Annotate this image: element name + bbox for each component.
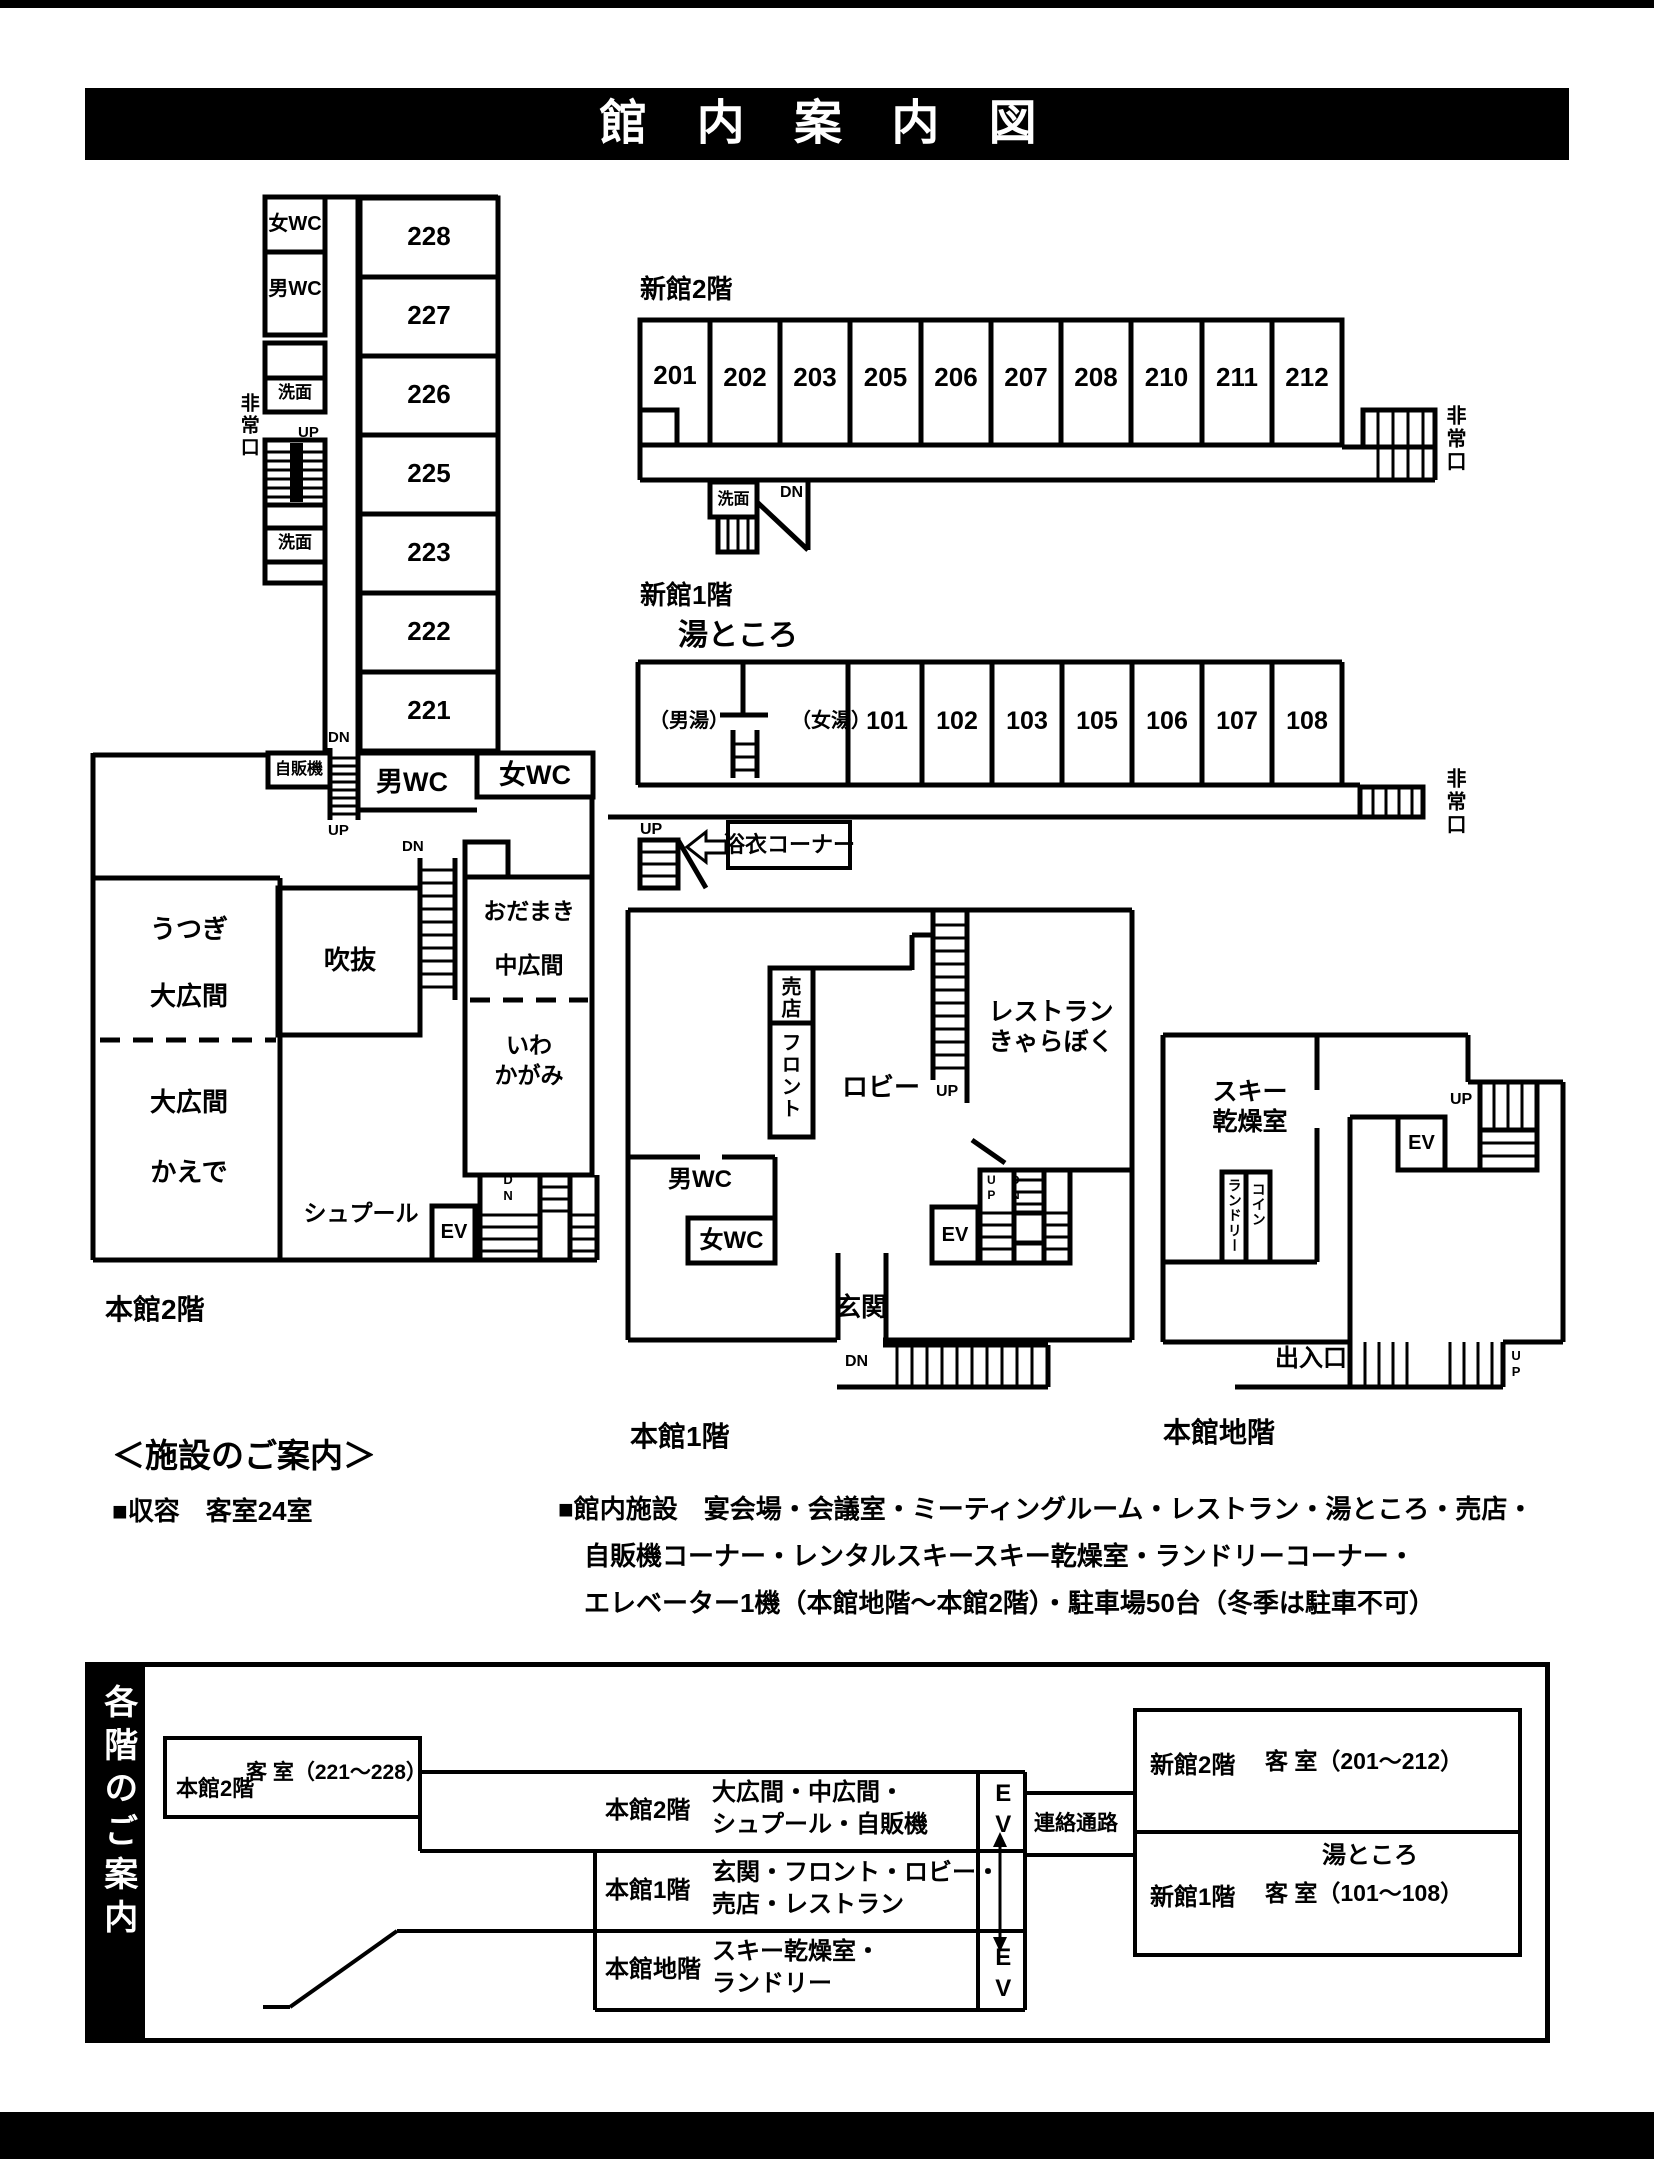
room-label-206: 206 xyxy=(921,362,991,394)
stair-dn-label: DN xyxy=(328,729,350,747)
atrium-label: 吹抜 xyxy=(300,945,400,977)
kaede-room-label-2: かえで xyxy=(108,1158,270,1188)
womens-wc-label: 女WC xyxy=(267,210,323,238)
plan-shinkan2f-walls xyxy=(640,320,1435,552)
guide-shinkan1f-floor: 新館1階 xyxy=(1150,1884,1235,1913)
stair-dn-label: DN xyxy=(500,1172,516,1204)
ski-drying-label-1: スキー xyxy=(1185,1078,1315,1106)
entrance-stairs-treads xyxy=(897,1345,1032,1387)
guide-honkan2f-rooms-floor: 本館2階 xyxy=(176,1776,254,1802)
mens-wc2-label: 男WC xyxy=(363,765,461,799)
room-label-227: 227 xyxy=(362,301,496,331)
odamaki-hall-label-2: 中広間 xyxy=(470,952,588,980)
stairs-treads xyxy=(332,758,356,814)
odamaki-hall-label-1: おだまき xyxy=(470,898,588,926)
vending-label: 自販機 xyxy=(270,758,328,782)
mens-bath-label: （男湯） xyxy=(636,708,742,734)
room-label-203: 203 xyxy=(780,362,850,394)
washroom-label: 洗面 xyxy=(712,488,755,512)
iwakagami-room-label-1: いわ xyxy=(470,1032,588,1059)
guide-ev-bottom-label: EV xyxy=(988,1944,1017,2006)
room-label-211: 211 xyxy=(1202,362,1272,394)
stair-up-label: UP xyxy=(328,822,349,840)
floor-guide-title: 各階のご案内 xyxy=(97,1684,138,1942)
guide-shinkan2f-floor: 新館2階 xyxy=(1150,1752,1235,1781)
laundry-label: ランドリー xyxy=(1226,1178,1243,1253)
stairs-treads xyxy=(1373,787,1412,817)
shinkan1f-caption: 新館1階 xyxy=(640,580,732,611)
washroom-label: 洗面 xyxy=(269,530,321,556)
honkan1f-caption: 本館1階 xyxy=(630,1420,730,1454)
room-label-221: 221 xyxy=(362,696,496,726)
restaurant-label-2: きゃらぼく xyxy=(980,1028,1122,1056)
stairs-treads xyxy=(422,870,453,987)
guide-row-honkan2f-desc2: シュプール・自販機 xyxy=(712,1811,928,1840)
stair-up-label: UP xyxy=(640,820,662,839)
shinkan2f-caption: 新館2階 xyxy=(640,274,732,305)
guide-shinkan1f-desc: 客 室（101～108） xyxy=(1265,1880,1463,1908)
facilities-line-2: 自販機コーナー・レンタルスキースキー乾燥室・ランドリーコーナー・ xyxy=(584,1541,1415,1572)
facility-heading: ＜施設のご案内＞ xyxy=(112,1436,376,1476)
shop-label: 売店 xyxy=(777,976,801,1020)
room-label-212: 212 xyxy=(1272,362,1342,394)
guide-honkan2f-rooms-desc: 客 室（221～228） xyxy=(246,1760,427,1785)
guide-shinkan1f-desc-top: 湯ところ xyxy=(1322,1842,1418,1871)
guide-row-honkanb1-floor: 本館地階 xyxy=(605,1956,701,1985)
room-label-202: 202 xyxy=(710,362,780,394)
stair-dn-label: DN xyxy=(845,1352,868,1371)
elevator-label: EV xyxy=(934,1220,976,1250)
guide-row-honkan1f-floor: 本館1階 xyxy=(605,1877,690,1906)
exit-stairs-treads xyxy=(1365,1342,1492,1387)
emergency-exit-label: 非常口 xyxy=(1442,768,1466,837)
guide-row-honkan1f-desc2: 売店・レストラン xyxy=(712,1891,904,1920)
spur-room-label: シュプール xyxy=(292,1200,430,1228)
washroom-label: 洗面 xyxy=(269,380,321,406)
stair-dn-label: DN xyxy=(1008,1173,1022,1203)
front-desk-label: フロント xyxy=(777,1032,801,1120)
room-label-107: 107 xyxy=(1202,706,1272,736)
stair-dn-label: DN xyxy=(780,483,803,502)
guide-ev-top-label: EV xyxy=(988,1780,1017,1842)
guide-shinkan2f-desc: 客 室（201～212） xyxy=(1265,1748,1463,1776)
facilities-line-3: エレベーター1機（本館地階～本館2階）・駐車場50台（冬季は駐車不可） xyxy=(584,1588,1435,1619)
yukata-arrow xyxy=(687,832,726,862)
emergency-exit-label: 非常口 xyxy=(236,393,259,459)
womens-wc2-label: 女WC xyxy=(485,758,585,792)
stairs-treads xyxy=(642,852,676,876)
guide-row-honkan2f-floor: 本館2階 xyxy=(605,1797,690,1826)
guide-row-honkan2f-desc1: 大広間・中広間・ xyxy=(712,1779,904,1808)
floor-guide-page: 館 内 案 内 図 xyxy=(0,0,1654,2159)
coin-label: コイン xyxy=(1250,1182,1267,1227)
stair-up-label: UP xyxy=(298,424,319,442)
room-label-208: 208 xyxy=(1061,362,1131,394)
stairs-treads xyxy=(728,517,748,552)
room-label-228: 228 xyxy=(362,222,496,252)
ski-drying-label-2: 乾燥室 xyxy=(1185,1108,1315,1136)
guide-row-honkan1f-desc1: 玄関・フロント・ロビー・ xyxy=(712,1859,1000,1888)
room-label-103: 103 xyxy=(992,706,1062,736)
stair-up-label: UP xyxy=(1508,1348,1524,1380)
honkanb1-caption: 本館地階 xyxy=(1163,1416,1275,1450)
room-label-207: 207 xyxy=(991,362,1061,394)
room-label-222: 222 xyxy=(362,617,496,647)
utsugi-room-label-2: 大広間 xyxy=(108,982,270,1012)
stair-up-label: UP xyxy=(936,1082,958,1101)
guide-row-honkanb1-desc2: ランドリー xyxy=(712,1970,832,1999)
stair-up-label: UP xyxy=(1450,1090,1472,1109)
emergency-exit-label: 非常口 xyxy=(1442,405,1466,474)
room-label-101: 101 xyxy=(852,706,922,736)
kaede-room-label-1: 大広間 xyxy=(108,1088,270,1118)
stairs-treads xyxy=(1480,1082,1537,1156)
capacity-line: ■収容 客室24室 xyxy=(112,1496,313,1527)
iwakagami-room-label-2: かがみ xyxy=(470,1062,588,1089)
yukata-corner-label: 浴衣コーナー xyxy=(730,832,848,858)
lobby-label: ロビー xyxy=(842,1072,920,1103)
yudokoro-label: 湯ところ xyxy=(678,618,798,654)
lobby-stairs-treads xyxy=(935,925,965,1068)
stair-up-label: UP xyxy=(984,1173,998,1203)
elevator-label: EV xyxy=(434,1218,474,1246)
room-label-205: 205 xyxy=(850,362,921,394)
room-label-105: 105 xyxy=(1062,706,1132,736)
bath-stairs-treads xyxy=(733,744,757,770)
room-label-223: 223 xyxy=(362,538,496,568)
mens-wc-label: 男WC xyxy=(267,275,323,303)
stair-dn-label: DN xyxy=(402,838,424,856)
room-label-201: 201 xyxy=(640,360,710,392)
womens-wc-label: 女WC xyxy=(690,1226,773,1256)
guide-corridor-label: 連絡通路 xyxy=(1034,1811,1118,1836)
entrance-label: 玄関 xyxy=(835,1292,887,1323)
guide-row-honkanb1-desc1: スキー乾燥室・ xyxy=(712,1938,880,1967)
doorway-label: 出入口 xyxy=(1275,1345,1347,1374)
elevator-label: EV xyxy=(1400,1128,1443,1158)
room-label-106: 106 xyxy=(1132,706,1202,736)
honkan2f-caption: 本館2階 xyxy=(105,1293,205,1327)
room-label-225: 225 xyxy=(362,459,496,489)
utsugi-room-label-1: うつぎ xyxy=(108,915,270,945)
room-label-226: 226 xyxy=(362,380,496,410)
facilities-line-1: ■館内施設 宴会場・会議室・ミーティングルーム・レストラン・湯ところ・売店・ xyxy=(558,1494,1533,1525)
room-label-102: 102 xyxy=(922,706,992,736)
room-label-108: 108 xyxy=(1272,706,1342,736)
restaurant-label-1: レストラン xyxy=(980,998,1122,1026)
mens-wc-label: 男WC xyxy=(668,1166,732,1195)
room-label-210: 210 xyxy=(1131,362,1202,394)
